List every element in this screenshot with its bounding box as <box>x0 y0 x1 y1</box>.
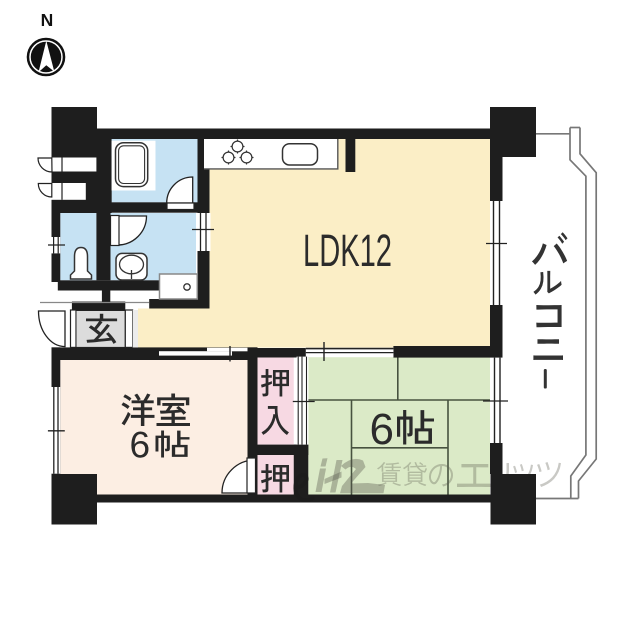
svg-text:6: 6 <box>370 405 394 454</box>
svg-text:N: N <box>41 10 54 30</box>
svg-text:6: 6 <box>130 424 151 465</box>
svg-text:LDK12: LDK12 <box>303 225 392 276</box>
